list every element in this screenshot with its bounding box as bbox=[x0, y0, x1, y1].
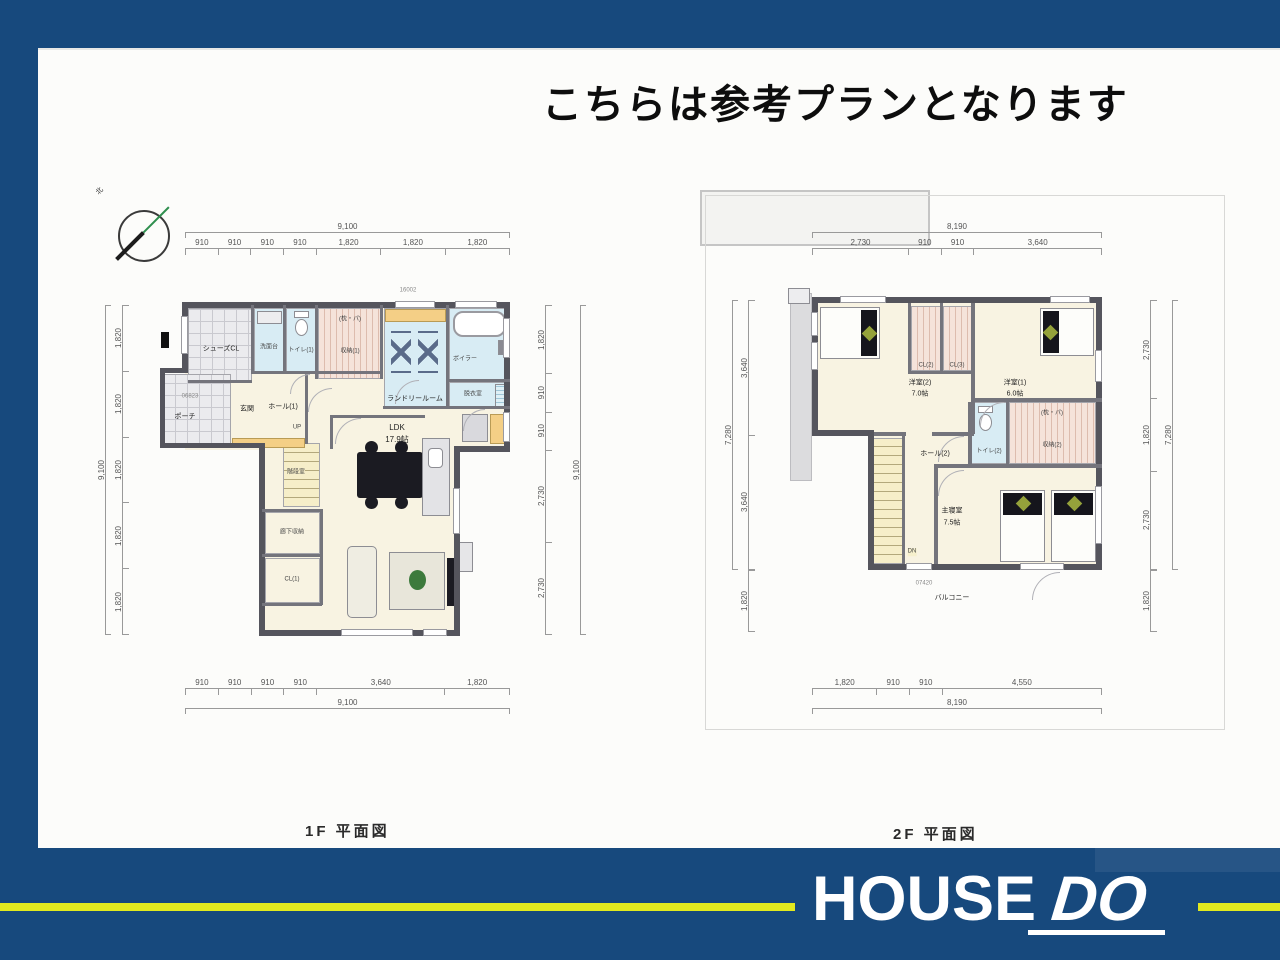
dim-label: 910 bbox=[252, 678, 284, 687]
window bbox=[395, 301, 435, 308]
dim-right-col-1f: 1,820 910 910 2,730 2,730 bbox=[545, 305, 552, 635]
logo-do-text: DO bbox=[1049, 868, 1150, 931]
wall bbox=[934, 464, 1102, 468]
wall bbox=[454, 446, 510, 452]
room-size-yoshitsu2: 7.0帖 bbox=[912, 391, 929, 400]
wall bbox=[934, 468, 938, 564]
window bbox=[1020, 563, 1064, 570]
window bbox=[1095, 486, 1102, 544]
room-label-shinshitsu: 主寝室 bbox=[942, 508, 963, 517]
dim-label: 1,820 bbox=[114, 460, 123, 480]
dim-label: 910 bbox=[186, 238, 218, 247]
room-label-toilet2: トイレ(2) bbox=[976, 448, 1001, 456]
washbasin bbox=[257, 311, 282, 324]
window bbox=[341, 629, 413, 636]
window bbox=[906, 563, 932, 570]
floor-plan-2f: 8,190 2,730 910 910 3,640 1,820 910 910 … bbox=[700, 190, 1230, 735]
dim-label: 9,100 bbox=[572, 460, 581, 480]
dim-label: 1,820 bbox=[537, 330, 546, 350]
caption-2f: 2F 平面図 bbox=[893, 823, 978, 844]
room-size-ldk: 17.9帖 bbox=[385, 435, 409, 445]
dim-label: 910 bbox=[186, 678, 218, 687]
wall bbox=[262, 509, 322, 512]
wall bbox=[449, 379, 510, 382]
toilet-tank bbox=[294, 311, 309, 318]
bed bbox=[820, 307, 880, 359]
window bbox=[503, 318, 510, 358]
dining-chair bbox=[365, 441, 378, 454]
wall bbox=[868, 564, 1102, 570]
sash-code-balcony: 07420 bbox=[916, 580, 933, 588]
window bbox=[811, 312, 818, 336]
dim-label: 910 bbox=[219, 678, 251, 687]
wall bbox=[251, 371, 383, 374]
logo-line-left bbox=[0, 903, 795, 911]
window bbox=[1095, 350, 1102, 382]
dim-label: 910 bbox=[251, 238, 283, 247]
room-label-genkan: 玄関 bbox=[240, 406, 254, 415]
dim-bottom-row-1f: 910 910 910 910 3,640 1,820 bbox=[185, 688, 510, 695]
window bbox=[423, 629, 447, 636]
bathtub bbox=[453, 311, 506, 337]
dim-label: 1,820 bbox=[114, 526, 123, 546]
logo-underline bbox=[1028, 930, 1165, 935]
dim-label: 9,100 bbox=[97, 460, 106, 480]
dining-table bbox=[357, 452, 423, 498]
room-label-hall1: ホール(1) bbox=[268, 404, 298, 413]
window bbox=[453, 488, 460, 534]
toilet-bowl bbox=[295, 319, 308, 336]
room-label-balcony: バルコニー bbox=[935, 595, 970, 604]
wall bbox=[259, 446, 265, 636]
wall bbox=[812, 430, 874, 436]
wall bbox=[902, 436, 905, 564]
dim-label: 1,820 bbox=[317, 238, 380, 247]
wall bbox=[188, 380, 252, 383]
room-label-cl2: CL(2) bbox=[918, 362, 933, 370]
wall bbox=[908, 303, 911, 373]
dim-left-total-1f: 9,100 bbox=[105, 305, 111, 635]
dining-chair bbox=[395, 496, 408, 509]
laundry-counter bbox=[385, 309, 446, 322]
wall bbox=[454, 446, 460, 636]
dim-top-row-1f: 910 910 910 910 1,820 1,820 1,820 bbox=[185, 248, 510, 255]
room-label-yoshitsu1: 洋室(1) bbox=[1004, 380, 1027, 389]
logo-house-text: HOUSE bbox=[812, 868, 1036, 931]
bed bbox=[1000, 490, 1045, 562]
window bbox=[1050, 296, 1090, 303]
sash-code-top: 16002 bbox=[400, 287, 417, 295]
window bbox=[811, 342, 818, 370]
wall bbox=[251, 305, 254, 372]
footer-bar: HOUSE DO bbox=[0, 848, 1280, 960]
wall bbox=[160, 443, 265, 448]
room-label-hall-storage: 廊下収納 bbox=[280, 529, 304, 537]
room-label-cl3: CL(3) bbox=[949, 362, 964, 370]
dim-label: 1,820 bbox=[114, 328, 123, 348]
dim-label: 9,100 bbox=[186, 222, 509, 231]
room-label-ldk: LDK bbox=[389, 423, 405, 433]
sash-code: 06823 bbox=[182, 393, 199, 401]
meter-box bbox=[161, 332, 169, 348]
wall bbox=[262, 603, 322, 606]
window bbox=[455, 301, 497, 308]
kitchen-sink bbox=[428, 448, 443, 468]
floor-plan-1f: 9,100 910 910 910 910 1,820 1,820 1,820 … bbox=[95, 190, 610, 735]
dim-label: 1,820 bbox=[114, 394, 123, 414]
room-label-cl1: CL(1) bbox=[284, 576, 299, 584]
window bbox=[503, 412, 510, 442]
dim-label: 1,820 bbox=[446, 238, 509, 247]
wall bbox=[940, 303, 943, 373]
wall bbox=[446, 305, 449, 409]
dim-bottom-total-1f: 9,100 bbox=[185, 708, 510, 714]
wall bbox=[380, 305, 383, 379]
dim-left-col-1f: 1,820 1,820 1,820 1,820 1,820 bbox=[122, 305, 129, 635]
room-label-datsui: 脱衣室 bbox=[464, 391, 482, 399]
room-label-stair: 階段室 bbox=[287, 469, 305, 477]
room-size-shinshitsu: 7.5帖 bbox=[944, 520, 961, 529]
wall bbox=[333, 415, 425, 418]
room-label-yoshitsu2: 洋室(2) bbox=[909, 380, 932, 389]
dim-label: 910 bbox=[284, 678, 316, 687]
dim-label: 910 bbox=[537, 424, 546, 437]
room-label-boiler: ボイラー bbox=[453, 356, 477, 364]
room-note-storage1: (枕・パ) bbox=[339, 316, 361, 324]
room-label-storage2: 収納(2) bbox=[1042, 442, 1061, 450]
housedo-logo: HOUSE DO bbox=[812, 868, 1147, 931]
page-title: こちらは参考プランとなります bbox=[542, 72, 1129, 130]
wall bbox=[330, 415, 333, 449]
wall bbox=[1006, 402, 1009, 466]
wall bbox=[383, 406, 510, 409]
wall bbox=[932, 432, 974, 436]
drying-rack bbox=[391, 331, 411, 373]
window bbox=[181, 316, 188, 354]
wall bbox=[868, 430, 874, 570]
wall bbox=[315, 305, 318, 379]
wall bbox=[975, 398, 1102, 402]
dining-chair bbox=[365, 496, 378, 509]
stairs-up-label: UP bbox=[293, 424, 301, 432]
balcony bbox=[700, 190, 930, 246]
logo-line-right bbox=[1198, 903, 1280, 911]
dim-right-total-1f: 9,100 bbox=[580, 305, 586, 635]
wall bbox=[320, 509, 323, 605]
room-label-porch: ポーチ bbox=[175, 414, 196, 423]
wall bbox=[262, 554, 322, 557]
room-label-shoes: シューズCL bbox=[203, 346, 240, 355]
window bbox=[840, 296, 886, 303]
stairs-dn-label: DN bbox=[908, 548, 917, 556]
wall bbox=[160, 368, 165, 448]
room-cl2 bbox=[911, 306, 941, 371]
bed bbox=[1051, 490, 1096, 562]
dim-label: 1,820 bbox=[445, 678, 509, 687]
room-porch bbox=[163, 374, 231, 444]
caption-1f: 1F 平面図 bbox=[305, 820, 390, 841]
room-staircase-2f bbox=[872, 438, 904, 564]
tv bbox=[447, 558, 454, 606]
wall bbox=[283, 305, 286, 372]
room-size-yoshitsu1: 6.0帖 bbox=[1007, 391, 1024, 400]
dim-label: 2,730 bbox=[537, 578, 546, 598]
sofa bbox=[347, 546, 377, 618]
dim-label: 9,100 bbox=[186, 698, 509, 707]
room-label-washstand: 洗面台 bbox=[260, 344, 278, 352]
dim-label: 910 bbox=[284, 238, 316, 247]
plant bbox=[409, 570, 426, 590]
dim-label: 3,640 bbox=[317, 678, 444, 687]
room-label-storage1: 収納(1) bbox=[340, 348, 359, 356]
dim-label: 910 bbox=[537, 386, 546, 399]
room-note-storage2: (枕・パ) bbox=[1041, 410, 1063, 418]
wall bbox=[908, 371, 975, 374]
drying-rack bbox=[418, 331, 438, 373]
room-label-toilet1: トイレ(1) bbox=[288, 347, 313, 355]
wall bbox=[874, 432, 906, 436]
dim-label: 910 bbox=[219, 238, 251, 247]
bed bbox=[1040, 308, 1094, 356]
dim-label: 1,820 bbox=[381, 238, 444, 247]
dim-label: 2,730 bbox=[537, 486, 546, 506]
room-label-hall2: ホール(2) bbox=[920, 451, 950, 460]
outdoor-unit bbox=[458, 542, 473, 572]
room-cl3 bbox=[943, 306, 972, 371]
room-label-laundry: ランドリールーム bbox=[387, 396, 443, 405]
dim-label: 1,820 bbox=[114, 592, 123, 612]
